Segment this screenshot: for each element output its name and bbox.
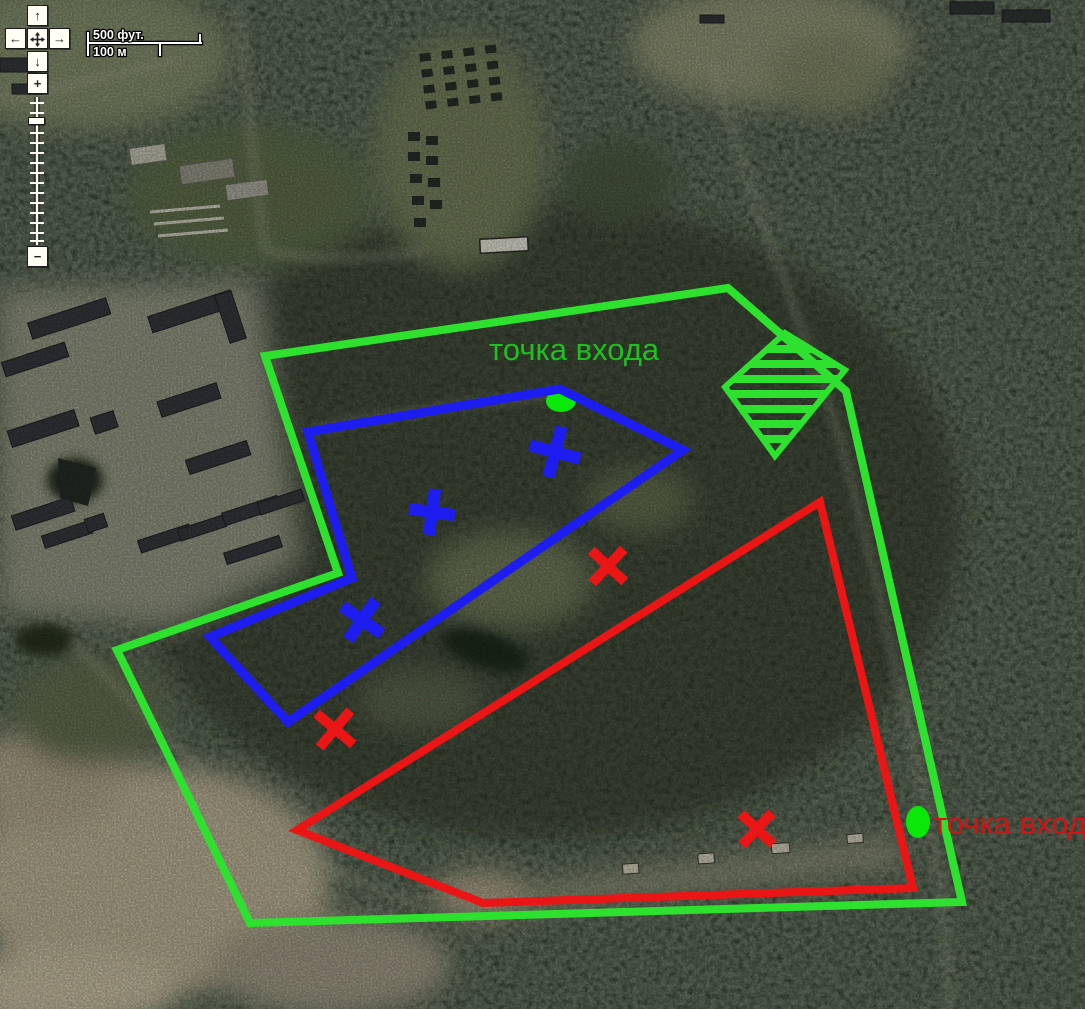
x-mark xyxy=(329,587,396,654)
pan-left-button[interactable]: ← xyxy=(5,28,26,49)
zoom-out-button[interactable]: − xyxy=(27,246,48,267)
pan-down-button[interactable]: ↓ xyxy=(27,51,48,72)
zoom-slider[interactable] xyxy=(26,95,48,247)
x-mark xyxy=(726,798,788,860)
pan-center-button[interactable] xyxy=(27,28,48,49)
entry-point-label-red: точка входа xyxy=(933,808,1085,839)
pan-up-button[interactable]: ↑ xyxy=(27,5,48,26)
entry-point-label-green: точка входа xyxy=(489,334,659,365)
satellite-map-view[interactable]: точка входа точка входа ↑ ← → ↓ + xyxy=(0,0,1085,1009)
zoom-in-button[interactable]: + xyxy=(27,73,48,94)
scale-meters-label: 100 м xyxy=(93,45,127,59)
scale-bar: 500 фут. 100 м xyxy=(84,22,219,64)
entry-point-dot xyxy=(906,806,930,838)
move-icon xyxy=(30,32,45,47)
pan-right-button[interactable]: → xyxy=(49,28,70,49)
annotation-overlay xyxy=(0,0,1085,1009)
x-mark xyxy=(523,420,587,484)
zoom-slider-handle[interactable] xyxy=(28,117,45,125)
scale-feet-label: 500 фут. xyxy=(93,28,144,42)
x-mark xyxy=(575,533,640,598)
x-mark xyxy=(406,486,458,538)
